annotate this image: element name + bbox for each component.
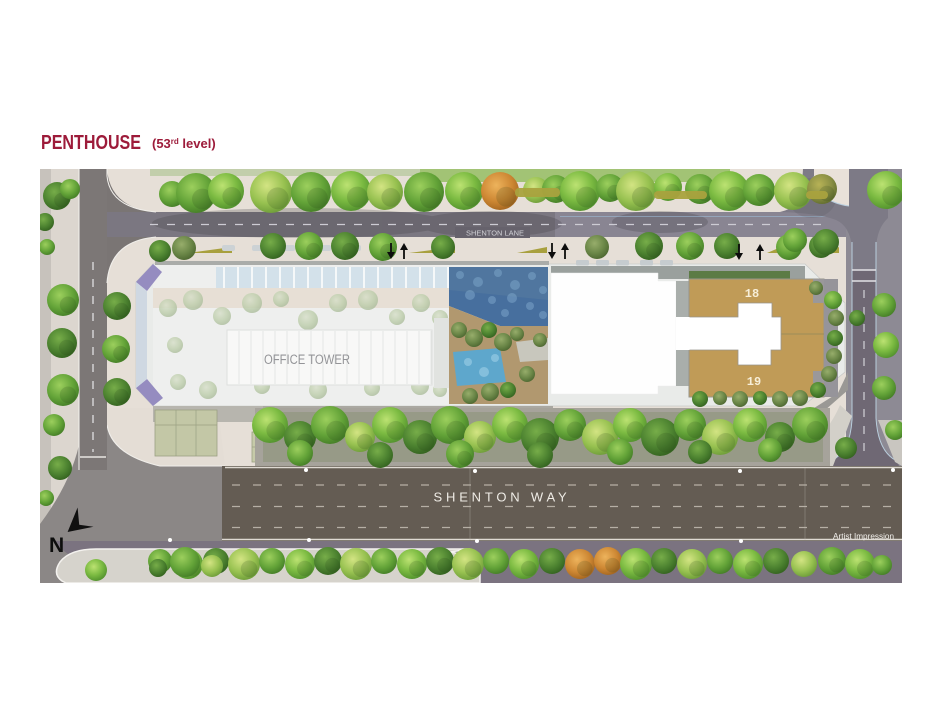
svg-text:(53rd level): (53rd level)	[152, 136, 216, 151]
svg-text:SHENTON LANE: SHENTON LANE	[466, 229, 524, 238]
svg-text:PENTHOUSE: PENTHOUSE	[41, 131, 141, 154]
svg-text:18: 18	[745, 287, 759, 301]
svg-text:19: 19	[747, 375, 761, 389]
svg-text:N: N	[49, 534, 64, 557]
svg-text:SHENTON WAY: SHENTON WAY	[434, 490, 571, 505]
svg-text:Artist Impression: Artist Impression	[833, 532, 894, 541]
